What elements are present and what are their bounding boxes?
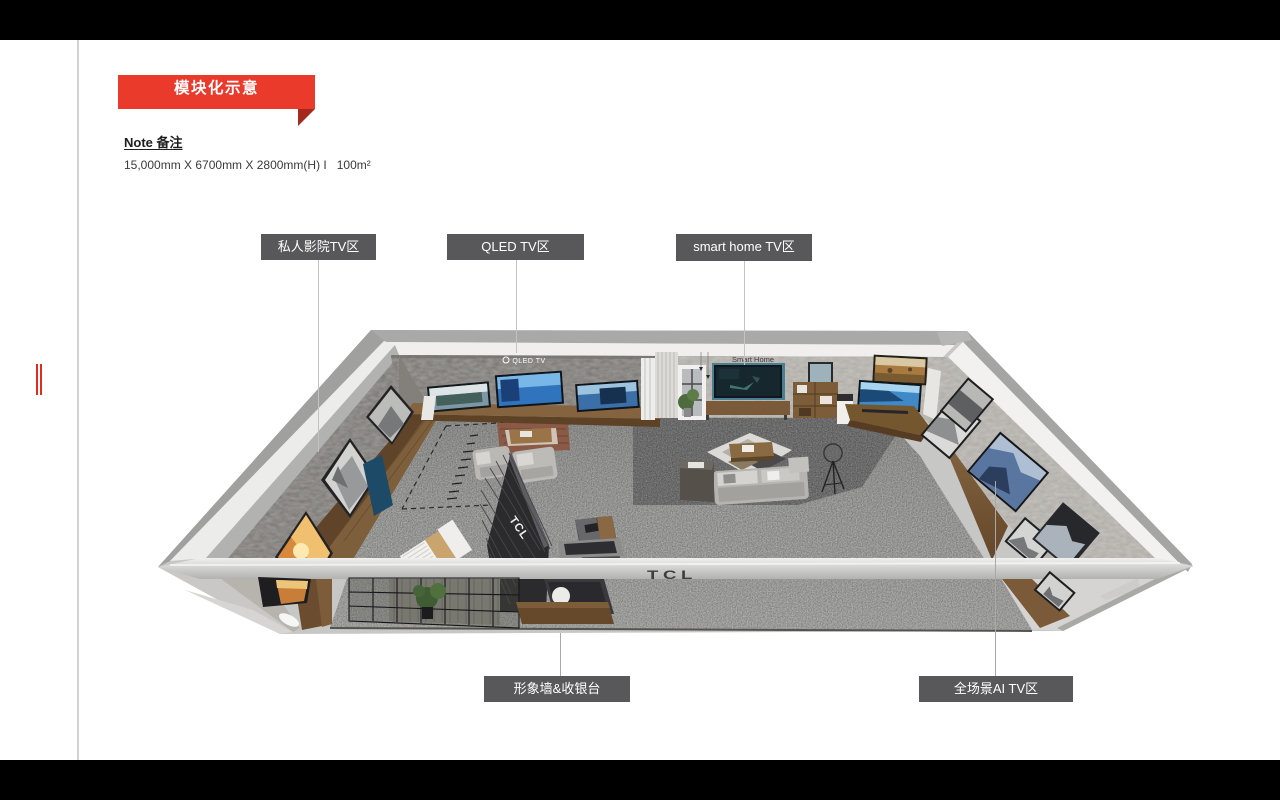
svg-text:TCL: TCL — [647, 568, 697, 582]
svg-text:QLED TV: QLED TV — [512, 358, 545, 365]
svg-text:Smart Home: Smart Home — [732, 355, 774, 364]
